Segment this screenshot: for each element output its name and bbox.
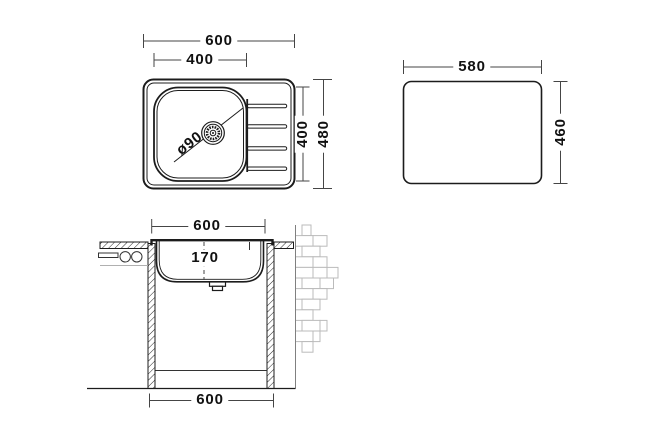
sink-top-view	[144, 80, 295, 189]
drawing-linework	[0, 0, 666, 444]
cutout-outline	[404, 82, 542, 184]
dim-cutout-height: 460	[552, 113, 569, 150]
dim-section-bottom-width: 600	[191, 392, 228, 409]
dim-top-view-overall-width: 600	[200, 33, 237, 50]
cutout-dimensions	[404, 60, 568, 184]
dim-section-bowl-depth: 170	[186, 250, 223, 267]
drain-outlet-section	[210, 282, 226, 291]
sink-rim-section	[152, 240, 273, 245]
countertop-left	[100, 242, 148, 249]
technical-drawing-page: 600 400 400 480 ø90 580 460 600 170 600	[0, 0, 666, 444]
cabinet-wall-left	[148, 244, 155, 389]
section-dimensions	[150, 219, 274, 408]
dim-section-top-width: 600	[188, 218, 225, 235]
countertop-right	[274, 242, 294, 249]
dim-cutout-width: 580	[453, 59, 490, 76]
cutout-view	[404, 82, 542, 184]
drainboard-ridges	[247, 99, 287, 172]
dim-top-view-bowl-height: 400	[295, 115, 312, 152]
top-view-dimensions	[144, 34, 333, 189]
counter-front-symbols	[99, 252, 143, 262]
dim-top-view-bowl-width: 400	[181, 52, 218, 69]
dim-top-view-overall-height: 480	[315, 115, 332, 152]
cabinet-wall-right	[267, 244, 274, 389]
brick-wall	[296, 225, 339, 352]
